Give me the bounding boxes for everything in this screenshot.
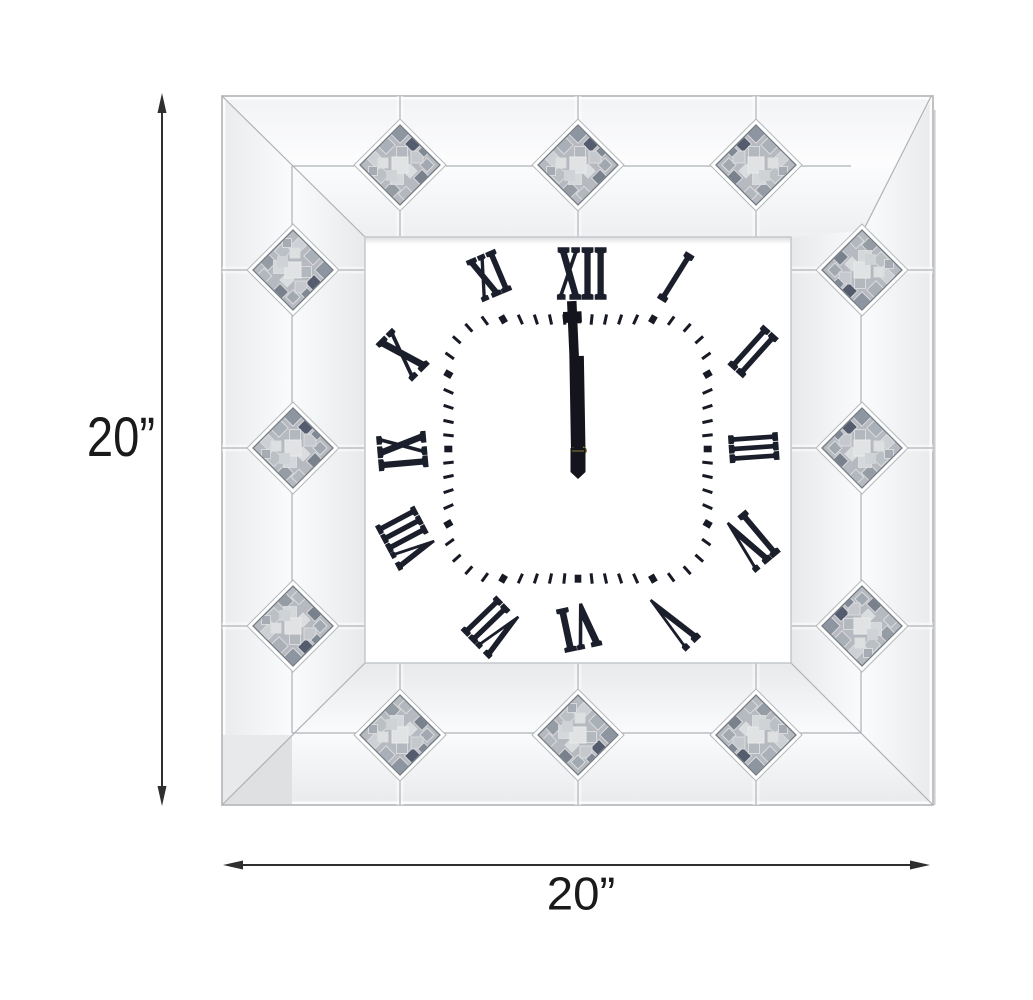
svg-text:III: III <box>713 430 795 464</box>
svg-text:20”: 20” <box>87 406 155 468</box>
svg-text:XII: XII <box>557 231 607 315</box>
svg-text:20”: 20” <box>547 868 615 919</box>
svg-text:IX: IX <box>361 430 444 474</box>
